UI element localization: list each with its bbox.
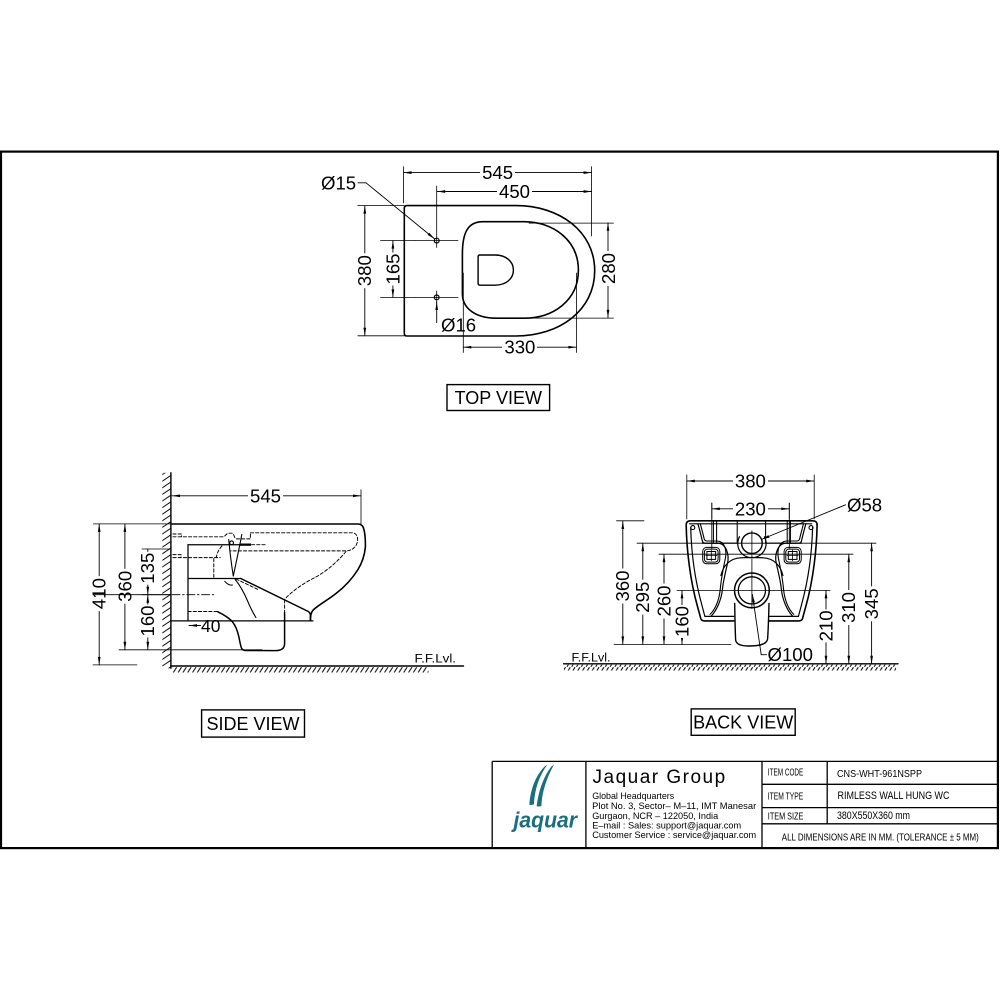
svg-text:BACK VIEW: BACK VIEW [693,712,793,732]
svg-text:230: 230 [735,498,766,519]
svg-text:ALL DIMENSIONS ARE IN MM. (TOL: ALL DIMENSIONS ARE IN MM. (TOLERANCE ± 5… [782,831,979,843]
svg-text:CNS-WHT-961NSPP: CNS-WHT-961NSPP [837,768,922,780]
svg-text:SIDE VIEW: SIDE VIEW [206,714,299,734]
svg-text:ITEM SIZE: ITEM SIZE [768,812,804,823]
svg-text:ITEM TYPE: ITEM TYPE [768,792,804,803]
svg-text:ITEM CODE: ITEM CODE [768,768,804,779]
svg-text:F.F.Lvl.: F.F.Lvl. [415,651,457,665]
svg-text:360: 360 [612,570,633,601]
svg-text:TOP VIEW: TOP VIEW [455,388,542,408]
svg-text:Ø16: Ø16 [441,314,476,335]
svg-text:410: 410 [89,578,110,609]
svg-text:380: 380 [354,255,375,286]
svg-text:Customer Service : service@jaq: Customer Service : service@jaquar.com [592,830,756,840]
svg-text:210: 210 [815,610,836,641]
svg-text:280: 280 [598,253,619,284]
svg-text:E–mail : Sales: support@jaquar: E–mail : Sales: support@jaquar.com [592,821,741,831]
svg-text:Gurgaon, NCR – 122050, India: Gurgaon, NCR – 122050, India [592,811,719,821]
svg-text:40: 40 [201,616,221,636]
svg-text:Plot No. 3, Sector– M–11, IMT: Plot No. 3, Sector– M–11, IMT Manesar [592,801,756,811]
svg-text:160: 160 [137,605,158,636]
svg-text:545: 545 [250,485,281,506]
svg-text:345: 345 [861,588,882,619]
svg-text:310: 310 [838,592,859,623]
svg-text:160: 160 [671,606,692,637]
svg-text:jaquar: jaquar [511,808,579,833]
svg-text:Ø58: Ø58 [847,494,882,515]
svg-text:Ø15: Ø15 [321,172,356,193]
svg-text:RIMLESS WALL HUNG WC: RIMLESS WALL HUNG WC [838,790,950,802]
svg-text:360: 360 [114,571,135,602]
svg-text:450: 450 [499,181,530,202]
svg-text:330: 330 [504,337,535,358]
svg-text:Jaquar Group: Jaquar Group [593,767,727,788]
svg-text:165: 165 [382,253,403,284]
svg-text:Global Headquarters: Global Headquarters [592,791,674,801]
svg-text:380: 380 [735,471,766,492]
svg-text:Ø100: Ø100 [768,644,814,665]
svg-text:295: 295 [632,582,653,613]
svg-text:F.F.Lvl.: F.F.Lvl. [572,650,611,664]
svg-text:380X550X360 mm: 380X550X360 mm [837,810,910,822]
svg-text:545: 545 [482,162,513,183]
svg-text:135: 135 [137,553,158,584]
